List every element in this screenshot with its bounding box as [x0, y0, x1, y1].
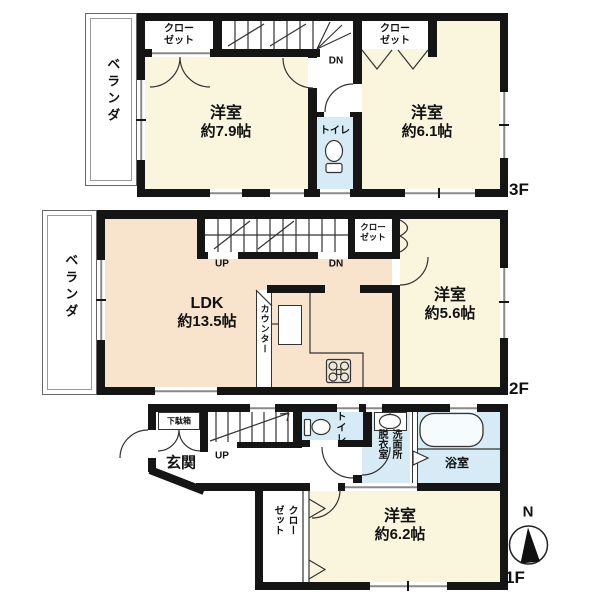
wall	[255, 483, 263, 590]
stairs-3f	[222, 21, 353, 49]
window-mullion	[499, 124, 509, 126]
room-name: 洋室	[425, 287, 476, 305]
floor1-label: 1F	[505, 568, 525, 588]
room-size: 約6.1帖	[402, 124, 453, 141]
floor2-label: 2F	[509, 379, 529, 399]
wall	[348, 219, 355, 252]
door-opening	[310, 483, 338, 491]
window-mullion	[407, 581, 409, 591]
room-name: LDK	[177, 295, 236, 313]
wall	[267, 285, 325, 293]
window	[450, 404, 477, 412]
stairs-dn-3f-label: DN	[329, 55, 343, 67]
wall	[222, 49, 320, 57]
room-size: 約7.9帖	[201, 124, 252, 141]
entrance-label: 玄関	[166, 454, 196, 471]
washroom-label-col: 脱衣室	[374, 429, 388, 459]
wall	[360, 285, 392, 293]
closet-1f-door-track	[302, 491, 310, 582]
room-size: 約13.5帖	[177, 314, 236, 331]
door-opening	[353, 447, 362, 475]
room-3f-left-label: 洋室 約7.9帖	[201, 105, 252, 141]
compass	[510, 526, 548, 564]
window	[345, 483, 417, 491]
floor-plan: ベランダ クロー ゼット クロー ゼット DN 洋室 約7.9帖 洋室 約6.1…	[0, 0, 600, 600]
window-mullion	[438, 188, 440, 198]
bath-partition	[412, 412, 418, 483]
wall	[428, 49, 437, 57]
veranda-3f-label: ベランダ	[103, 57, 121, 125]
closet-1f-label: クロー ゼット	[270, 505, 298, 535]
room-name: 洋室	[402, 105, 453, 123]
room-size: 約5.6帖	[425, 306, 476, 323]
counter-label: カウンター	[258, 304, 271, 354]
wall	[97, 210, 508, 219]
washroom-label: 洗面所 脱衣室	[374, 429, 402, 459]
wall	[500, 404, 508, 590]
window	[270, 189, 304, 197]
room-name: 洋室	[375, 508, 426, 526]
wall	[137, 13, 508, 21]
window	[250, 404, 275, 412]
closet-label-line: ゼット	[164, 35, 194, 47]
compass-north-label: N	[523, 503, 534, 520]
window	[155, 387, 217, 395]
veranda-2f-label: ベランダ	[61, 253, 79, 321]
stairs-dn-2f-label: DN	[329, 258, 343, 270]
stairs-up-2f-label: UP	[215, 258, 229, 270]
floor3-label: 3F	[509, 180, 529, 200]
ldk-label: LDK 約13.5帖	[177, 295, 236, 331]
bathroom-label: 浴室	[445, 457, 469, 471]
stairs-2f	[205, 219, 348, 252]
room-3f-right-label: 洋室 約6.1帖	[402, 105, 453, 141]
room-1f-label: 洋室 約6.2帖	[375, 508, 426, 544]
room-2f-label: 洋室 約5.6帖	[425, 287, 476, 323]
window	[210, 189, 242, 197]
stairs-up-1f-label: UP	[215, 450, 229, 462]
closet-label-line: ゼット	[360, 233, 386, 243]
toilet-3f-label: トイレ	[320, 125, 350, 137]
washroom-label-col: 洗面所	[388, 429, 402, 459]
closet-2f-label: クロー ゼット	[360, 223, 386, 243]
window	[366, 404, 382, 412]
wall	[197, 210, 205, 259]
closet-3f-right-label: クロー ゼット	[380, 24, 410, 47]
door-opening	[308, 58, 317, 88]
window-mullion	[136, 119, 146, 121]
window	[320, 189, 350, 197]
door-opening	[353, 84, 362, 112]
room-name: 洋室	[201, 105, 252, 123]
closet-label-line: クロー	[164, 24, 194, 36]
kitchen-cabinet	[278, 305, 302, 345]
window	[500, 268, 508, 338]
closet-3f-left-label: クロー ゼット	[164, 24, 194, 47]
window-mullion	[499, 301, 509, 303]
wall	[237, 442, 293, 448]
compass-circle	[510, 526, 548, 564]
door-opening	[324, 112, 350, 117]
window	[405, 189, 475, 197]
bathroom-1f	[417, 412, 500, 483]
window-mullion	[96, 299, 106, 301]
shoe-cabinet-label: 下駄箱	[167, 416, 191, 425]
closet-label-line: クロー	[380, 24, 410, 36]
door-opening	[392, 259, 400, 285]
closet-door-track	[152, 49, 210, 57]
closet-label-col: ゼット	[270, 505, 284, 535]
compass-needle-icon	[521, 528, 541, 564]
room-size: 約6.2帖	[375, 527, 426, 544]
wall	[200, 404, 208, 452]
closet-label-col: クロー	[284, 505, 298, 535]
entrance-door-opening	[148, 430, 156, 458]
wall	[348, 252, 400, 259]
closet-label-line: ゼット	[380, 35, 410, 47]
toilet-1f-label: トイレ	[332, 411, 346, 444]
